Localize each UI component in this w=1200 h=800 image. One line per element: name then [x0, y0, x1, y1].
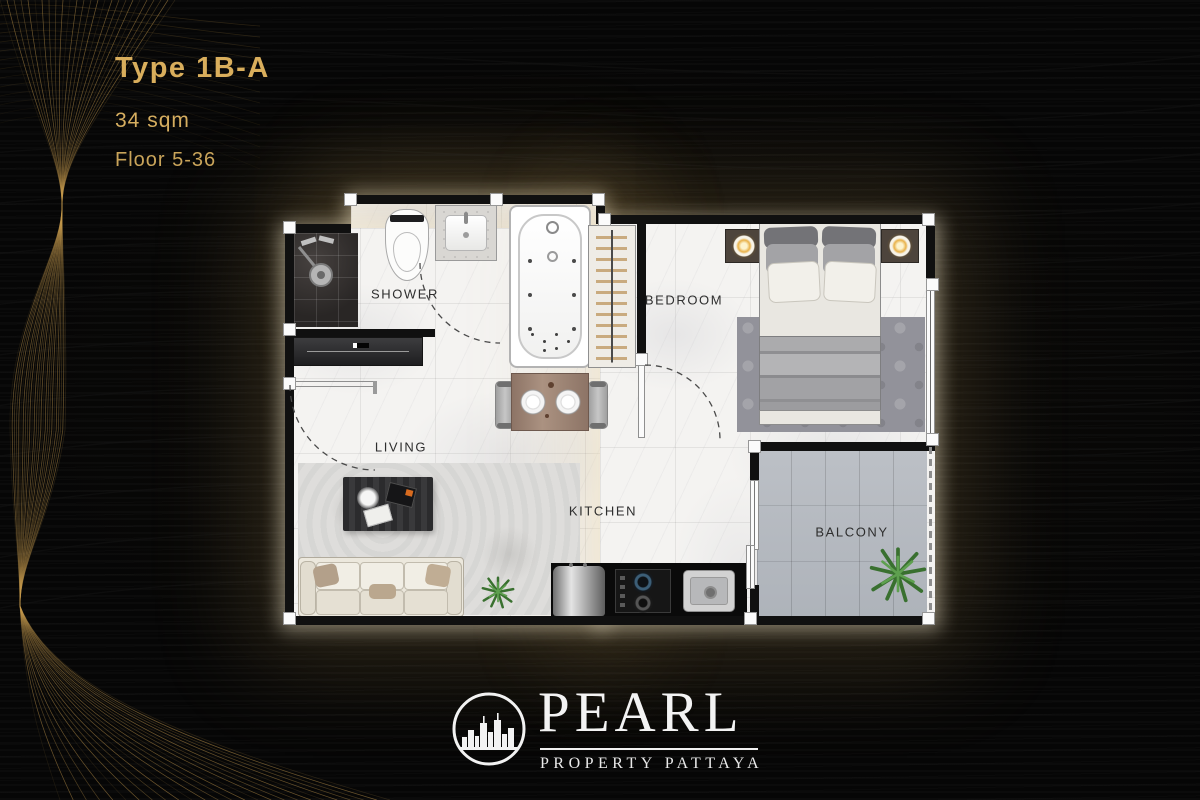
dining-table: [511, 373, 589, 431]
balcony-sliding-door: [750, 480, 759, 550]
stove: [615, 569, 671, 613]
plant-icon: [867, 543, 929, 610]
column: [748, 440, 761, 453]
plant-icon: [479, 573, 517, 616]
column: [344, 193, 357, 206]
table-decor: [545, 414, 549, 418]
sofa-seat-cushion: [404, 590, 448, 615]
column: [635, 353, 648, 366]
shower-room-tiles: [294, 233, 358, 327]
pillow: [823, 261, 877, 304]
bathtub: [509, 205, 591, 368]
throw-pillow: [424, 563, 451, 588]
column: [283, 612, 296, 625]
coffee-table-plate: [357, 487, 379, 509]
floor-plan: SHOWER BEDROOM LIVING KITCHEN BALCONY: [285, 195, 935, 625]
wall-segment: [285, 224, 294, 625]
bathtub-jets: [528, 259, 532, 263]
sink-basin: [445, 215, 487, 251]
column: [592, 193, 605, 206]
nightstand-right: [881, 229, 919, 263]
bed-blanket: [759, 336, 881, 412]
sofa: [298, 557, 464, 617]
bathroom-sink: [435, 205, 497, 261]
lamp-icon: [731, 233, 757, 259]
column: [598, 213, 611, 226]
bed: [759, 223, 881, 395]
nightstand-left: [725, 229, 763, 263]
column: [922, 213, 935, 226]
fridge: [553, 566, 605, 616]
column: [490, 193, 503, 206]
stove-burner: [632, 571, 654, 593]
room-label-living: LIVING: [375, 440, 427, 455]
unit-floor-range: Floor 5-36: [115, 149, 270, 172]
wall-segment: [757, 442, 935, 451]
table-decor: [548, 382, 554, 388]
unit-area: 34 sqm: [115, 109, 270, 133]
column: [283, 221, 296, 234]
bathroom-door-track: [285, 381, 377, 387]
bathtub-jets-foot: [531, 333, 534, 336]
column: [283, 323, 296, 336]
wardrobe: [588, 225, 636, 368]
bed-foot: [759, 410, 881, 425]
wall-segment: [347, 195, 603, 204]
column: [926, 433, 939, 446]
pillow: [767, 261, 821, 304]
wall-segment: [290, 329, 435, 337]
stove-burner: [633, 593, 653, 613]
kitchen-sink: [683, 570, 735, 612]
wall-segment: [285, 616, 935, 625]
sofa-seat-cushion: [316, 590, 360, 615]
wall-segment: [600, 215, 935, 224]
balcony-sliding-door: [746, 545, 755, 589]
column: [922, 612, 935, 625]
throw-pillow: [369, 584, 396, 599]
unit-type-title: Type 1B-A: [115, 52, 270, 85]
dining-chair: [588, 381, 608, 429]
bathtub-faucet: [546, 221, 559, 234]
bathtub-inner: [518, 214, 582, 359]
brand-divider: [540, 748, 758, 750]
tv-console: [293, 337, 423, 366]
column: [744, 612, 757, 625]
kitchen-counter: [551, 563, 747, 619]
coffee-table-tray: [385, 482, 417, 508]
bedroom-window: [926, 285, 935, 437]
place-setting: [555, 389, 581, 415]
lamp-icon: [887, 233, 913, 259]
room-label-shower: SHOWER: [371, 287, 439, 302]
stove-knobs: [620, 576, 625, 580]
poster: Type 1B-A 34 sqm Floor 5-36: [0, 0, 1200, 800]
coffee-table: [343, 477, 433, 531]
place-setting: [520, 389, 546, 415]
bathtub-drain: [547, 251, 558, 262]
city-skyline-icon: [450, 690, 528, 768]
balcony-railing: [929, 447, 932, 616]
column: [926, 278, 939, 291]
bedroom-door-leaf: [638, 358, 645, 438]
room-label-bedroom: BEDROOM: [645, 293, 723, 308]
bathroom-door-jamb: [373, 381, 377, 394]
room-label-kitchen: KITCHEN: [569, 504, 637, 519]
brand-tagline: PROPERTY PATTAYA: [540, 755, 763, 773]
unit-info: Type 1B-A 34 sqm Floor 5-36: [115, 52, 270, 172]
brand-name: PEARL: [538, 680, 744, 745]
wall-segment: [637, 215, 646, 360]
room-label-balcony: BALCONY: [815, 525, 888, 540]
column: [283, 377, 296, 390]
